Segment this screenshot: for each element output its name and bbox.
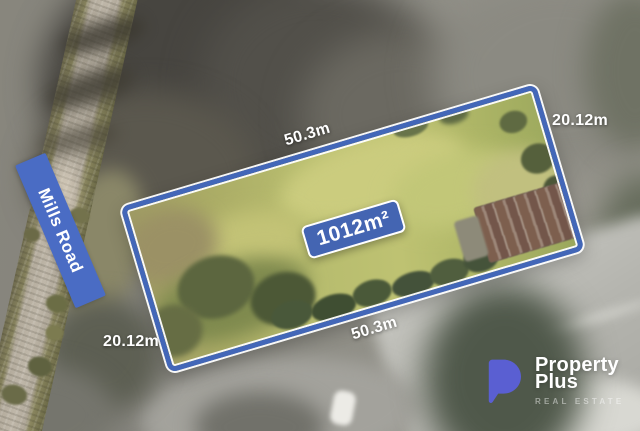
road-shadow: [39, 118, 121, 159]
roadside-shrub: [44, 323, 65, 343]
tree-canopy: [170, 246, 262, 328]
dimension-label-right: 20.12m: [552, 112, 608, 130]
road-shadow: [42, 58, 138, 117]
hedge-shrub: [268, 295, 316, 334]
tree-canopy: [244, 264, 322, 333]
hedge-shrub: [460, 241, 502, 276]
garden-beds: [453, 215, 489, 262]
roadside-shrub: [44, 293, 69, 315]
grass-patch: [170, 197, 313, 296]
edge-shrub: [517, 139, 558, 177]
brand-logo: Property Plus REAL ESTATE: [488, 357, 624, 406]
hedge-shrub: [389, 266, 438, 302]
garden-beds: [473, 181, 579, 263]
tree-shadow: [195, 392, 325, 431]
road-shadow: [59, 10, 149, 62]
hedge-shrub: [308, 289, 359, 327]
hedge-shrub: [427, 254, 473, 290]
roadside-shrub: [0, 382, 29, 407]
dimension-label-bottom: 50.3m: [349, 314, 399, 345]
edge-shrub: [391, 114, 431, 141]
parked-car: [329, 389, 357, 427]
edge-shrub: [540, 172, 574, 206]
speech-bubble-p-icon: [488, 359, 521, 405]
aerial-photo: 50.3m 20.12m 50.3m 20.12m 1012m² Mills R…: [0, 0, 640, 431]
grass-patch: [463, 138, 575, 237]
tree-canopy-blob: [590, 170, 640, 380]
roadside-shrub: [26, 354, 54, 379]
brand-name-line2: Plus: [535, 374, 624, 391]
brand-tagline: REAL ESTATE: [535, 397, 624, 406]
tree-canopy: [139, 298, 209, 364]
dimension-label-left: 20.12m: [103, 333, 159, 351]
roadside-shrub: [23, 226, 42, 243]
edge-shrub: [437, 104, 470, 128]
brand-text: Property Plus REAL ESTATE: [535, 357, 624, 406]
grass-patch: [144, 241, 319, 358]
grass-patch: [120, 197, 227, 296]
hedge-shrub: [349, 275, 395, 311]
edge-shrub: [497, 107, 530, 136]
